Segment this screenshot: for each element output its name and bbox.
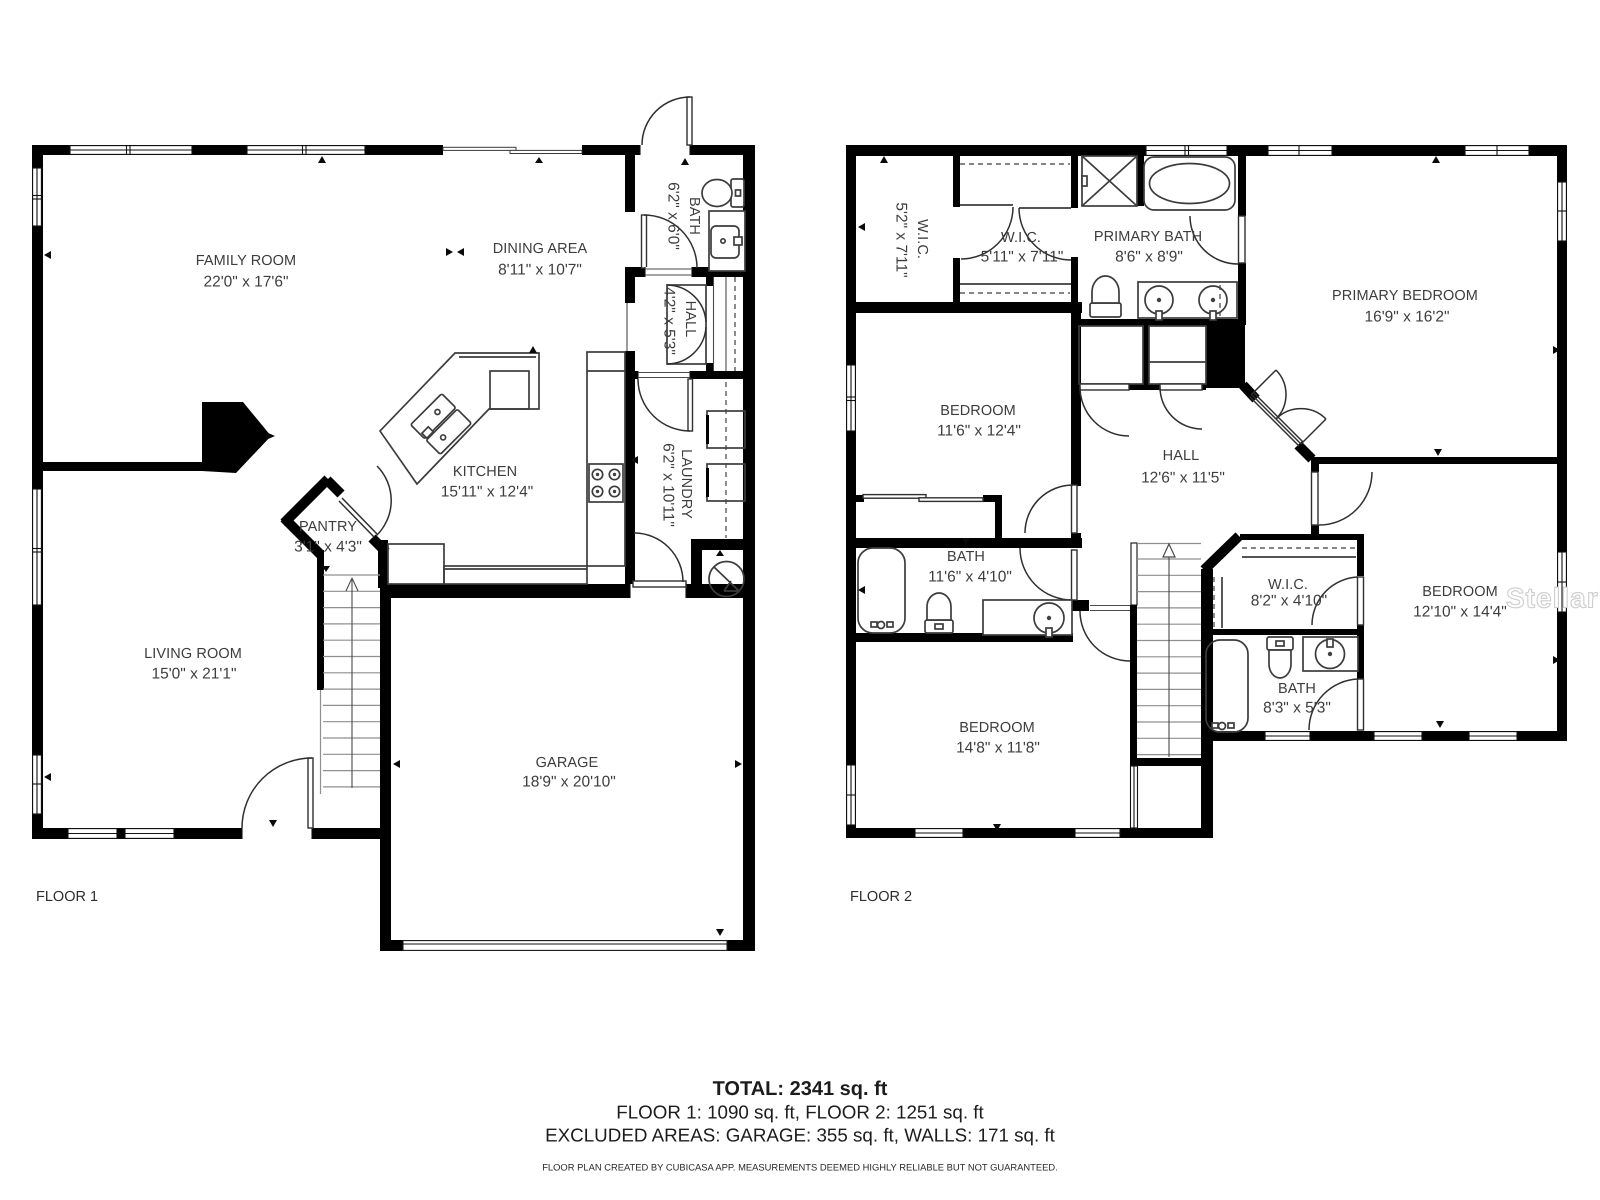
svg-text:12'6" x 11'5": 12'6" x 11'5" [1141, 470, 1225, 487]
svg-text:EXCLUDED AREAS: GARAGE: 355 sq: EXCLUDED AREAS: GARAGE: 355 sq. ft, WALL… [545, 1125, 1056, 1146]
svg-text:KITCHEN: KITCHEN [453, 464, 517, 480]
svg-text:BEDROOM: BEDROOM [959, 720, 1035, 736]
svg-text:11'6" x 12'4": 11'6" x 12'4" [937, 423, 1021, 440]
svg-text:PANTRY: PANTRY [299, 519, 357, 535]
svg-text:3'1" x 4'3": 3'1" x 4'3" [294, 539, 362, 556]
svg-text:W.I.C.: W.I.C. [914, 219, 930, 259]
svg-text:14'8" x 11'8": 14'8" x 11'8" [956, 740, 1040, 757]
svg-text:W.I.C.: W.I.C. [1268, 577, 1308, 593]
svg-text:16'9" x 16'2": 16'9" x 16'2" [1364, 309, 1449, 326]
svg-text:4'2" x 5'3": 4'2" x 5'3" [661, 287, 678, 355]
svg-text:6'2" x 10'11": 6'2" x 10'11" [660, 443, 677, 527]
svg-text:BEDROOM: BEDROOM [940, 403, 1016, 419]
svg-text:HALL: HALL [1163, 448, 1200, 464]
svg-text:FLOOR 1: 1090 sq. ft, FLOOR 2:: FLOOR 1: 1090 sq. ft, FLOOR 2: 1251 sq. … [616, 1102, 984, 1123]
svg-text:PRIMARY BEDROOM: PRIMARY BEDROOM [1332, 288, 1478, 304]
svg-text:22'0" x 17'6": 22'0" x 17'6" [203, 274, 288, 291]
svg-text:15'11" x 12'4": 15'11" x 12'4" [441, 484, 533, 501]
svg-text:PRIMARY BATH: PRIMARY BATH [1094, 229, 1202, 245]
svg-text:LAUNDRY: LAUNDRY [678, 449, 694, 519]
svg-text:11'6" x 4'10": 11'6" x 4'10" [928, 569, 1012, 586]
svg-text:DINING AREA: DINING AREA [493, 241, 588, 257]
svg-text:StellarMLS: StellarMLS [1506, 583, 1600, 614]
svg-text:FLOOR PLAN CREATED BY CUBICASA: FLOOR PLAN CREATED BY CUBICASA APP. MEAS… [542, 1162, 1058, 1173]
svg-text:LIVING ROOM: LIVING ROOM [144, 646, 242, 662]
svg-text:8'3" x 5'3": 8'3" x 5'3" [1263, 700, 1331, 717]
svg-text:FAMILY ROOM: FAMILY ROOM [196, 253, 296, 269]
svg-text:18'9" x 20'10": 18'9" x 20'10" [522, 774, 616, 791]
svg-text:8'11" x 10'7": 8'11" x 10'7" [498, 262, 582, 279]
svg-text:8'6" x 8'9": 8'6" x 8'9" [1115, 249, 1183, 266]
svg-text:BATH: BATH [1278, 681, 1316, 697]
svg-text:5'2" x 7'11": 5'2" x 7'11" [893, 202, 910, 277]
svg-text:TOTAL: 2341 sq. ft: TOTAL: 2341 sq. ft [713, 1078, 888, 1100]
svg-text:12'10" x 14'4": 12'10" x 14'4" [1413, 604, 1507, 621]
svg-text:GARAGE: GARAGE [536, 755, 599, 771]
svg-text:FLOOR 1: FLOOR 1 [36, 889, 98, 905]
svg-text:5'11" x 7'11": 5'11" x 7'11" [981, 249, 1064, 266]
svg-text:BEDROOM: BEDROOM [1422, 584, 1498, 600]
svg-text:W.I.C.: W.I.C. [1001, 230, 1041, 246]
svg-text:BATH: BATH [947, 549, 985, 565]
svg-text:FLOOR 2: FLOOR 2 [850, 889, 912, 905]
svg-text:BATH: BATH [686, 197, 702, 235]
svg-text:6'2" x 6'0": 6'2" x 6'0" [665, 182, 682, 250]
svg-text:8'2" x 4'10": 8'2" x 4'10" [1251, 593, 1327, 610]
svg-text:15'0" x 21'1": 15'0" x 21'1" [151, 666, 236, 683]
svg-text:HALL: HALL [682, 301, 698, 338]
